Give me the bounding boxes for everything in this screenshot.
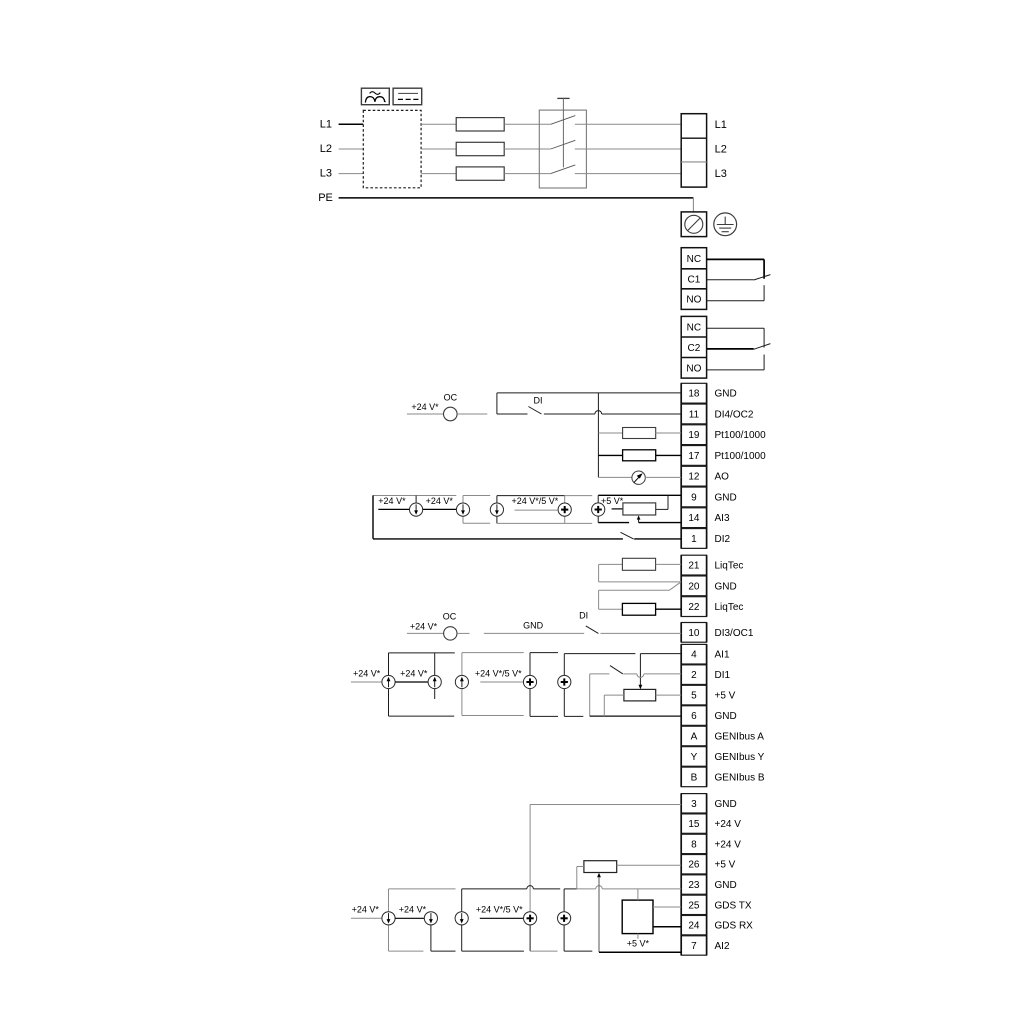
svg-text:5: 5 <box>691 691 697 702</box>
svg-text:GDS RX: GDS RX <box>715 921 754 932</box>
svg-text:21: 21 <box>688 561 700 572</box>
svg-text:+24 V*: +24 V* <box>411 402 439 412</box>
svg-text:+24 V*/5 V*: +24 V*/5 V* <box>475 668 522 678</box>
svg-text:AO: AO <box>715 472 730 483</box>
svg-text:NO: NO <box>686 363 701 374</box>
svg-text:6: 6 <box>691 711 697 722</box>
svg-text:19: 19 <box>688 430 700 441</box>
svg-text:GND: GND <box>715 799 737 810</box>
svg-text:DI2: DI2 <box>715 534 731 545</box>
svg-text:18: 18 <box>688 389 700 400</box>
svg-text:+24 V*: +24 V* <box>399 905 427 915</box>
svg-text:20: 20 <box>688 581 700 592</box>
svg-text:Y: Y <box>691 752 698 763</box>
svg-text:L3: L3 <box>320 168 332 180</box>
svg-text:15: 15 <box>688 819 700 830</box>
svg-text:C2: C2 <box>688 343 701 354</box>
svg-text:LiqTec: LiqTec <box>715 561 744 572</box>
svg-text:+24 V*: +24 V* <box>426 496 454 506</box>
svg-text:GND: GND <box>715 711 737 722</box>
svg-text:L3: L3 <box>715 168 727 180</box>
svg-text:AI3: AI3 <box>715 513 730 524</box>
svg-text:+24 V*/5 V*: +24 V*/5 V* <box>476 905 523 915</box>
svg-text:14: 14 <box>688 513 700 524</box>
svg-text:2: 2 <box>691 670 697 681</box>
svg-text:GND: GND <box>715 880 737 891</box>
svg-text:LiqTec: LiqTec <box>715 602 744 613</box>
svg-text:L1: L1 <box>320 118 332 130</box>
svg-text:B: B <box>691 772 698 783</box>
svg-text:26: 26 <box>688 860 700 871</box>
svg-text:4: 4 <box>691 650 697 661</box>
svg-text:DI1: DI1 <box>715 670 731 681</box>
svg-text:11: 11 <box>689 409 700 420</box>
svg-text:+24 V: +24 V <box>715 819 742 830</box>
svg-text:AI2: AI2 <box>715 941 730 952</box>
svg-text:GENIbus A: GENIbus A <box>715 732 765 743</box>
svg-text:+24 V*: +24 V* <box>378 496 406 506</box>
svg-text:+24 V*: +24 V* <box>400 668 428 678</box>
svg-text:12: 12 <box>688 472 700 483</box>
svg-text:17: 17 <box>688 451 700 462</box>
svg-text:8: 8 <box>691 839 697 850</box>
svg-text:L2: L2 <box>320 143 332 155</box>
svg-text:+24 V*: +24 V* <box>352 905 380 915</box>
svg-text:DI3/OC1: DI3/OC1 <box>715 628 754 639</box>
svg-text:NC: NC <box>687 322 701 333</box>
svg-text:Pt100/1000: Pt100/1000 <box>715 451 767 462</box>
svg-text:L1: L1 <box>715 119 727 131</box>
svg-text:GDS TX: GDS TX <box>715 900 752 911</box>
svg-text:10: 10 <box>688 628 700 639</box>
svg-text:+24 V*/5 V*: +24 V*/5 V* <box>512 496 559 506</box>
svg-text:+24 V*: +24 V* <box>353 668 381 678</box>
svg-text:+5 V*: +5 V* <box>627 939 650 949</box>
svg-text:AI1: AI1 <box>715 650 730 661</box>
svg-text:GENIbus B: GENIbus B <box>715 772 765 783</box>
svg-text:+24 V*: +24 V* <box>410 621 438 631</box>
svg-text:25: 25 <box>688 900 700 911</box>
svg-text:A: A <box>691 732 698 743</box>
svg-text:Pt100/1000: Pt100/1000 <box>715 430 767 441</box>
svg-text:+5 V*: +5 V* <box>601 496 624 506</box>
svg-text:NC: NC <box>687 254 701 265</box>
svg-text:L2: L2 <box>715 144 727 156</box>
svg-text:OC: OC <box>443 612 457 622</box>
svg-text:3: 3 <box>691 799 697 810</box>
svg-text:DI: DI <box>579 611 588 621</box>
svg-text:GND: GND <box>523 621 544 631</box>
svg-text:DI: DI <box>534 396 543 406</box>
svg-text:GND: GND <box>715 492 737 503</box>
svg-text:GND: GND <box>715 581 737 592</box>
svg-text:+24 V: +24 V <box>715 839 742 850</box>
svg-text:24: 24 <box>688 921 700 932</box>
svg-text:23: 23 <box>688 880 700 891</box>
svg-text:9: 9 <box>691 492 697 503</box>
svg-text:GND: GND <box>715 389 737 400</box>
svg-text:22: 22 <box>688 602 700 613</box>
svg-text:DI4/OC2: DI4/OC2 <box>715 409 754 420</box>
svg-text:GENIbus Y: GENIbus Y <box>715 752 765 763</box>
svg-text:1: 1 <box>691 534 697 545</box>
svg-text:+5 V: +5 V <box>715 860 736 871</box>
svg-text:PE: PE <box>318 192 333 204</box>
svg-text:NO: NO <box>686 295 701 306</box>
svg-text:C1: C1 <box>688 274 701 285</box>
svg-text:7: 7 <box>691 941 697 952</box>
svg-text:+5 V: +5 V <box>715 691 736 702</box>
svg-text:OC: OC <box>444 392 458 402</box>
